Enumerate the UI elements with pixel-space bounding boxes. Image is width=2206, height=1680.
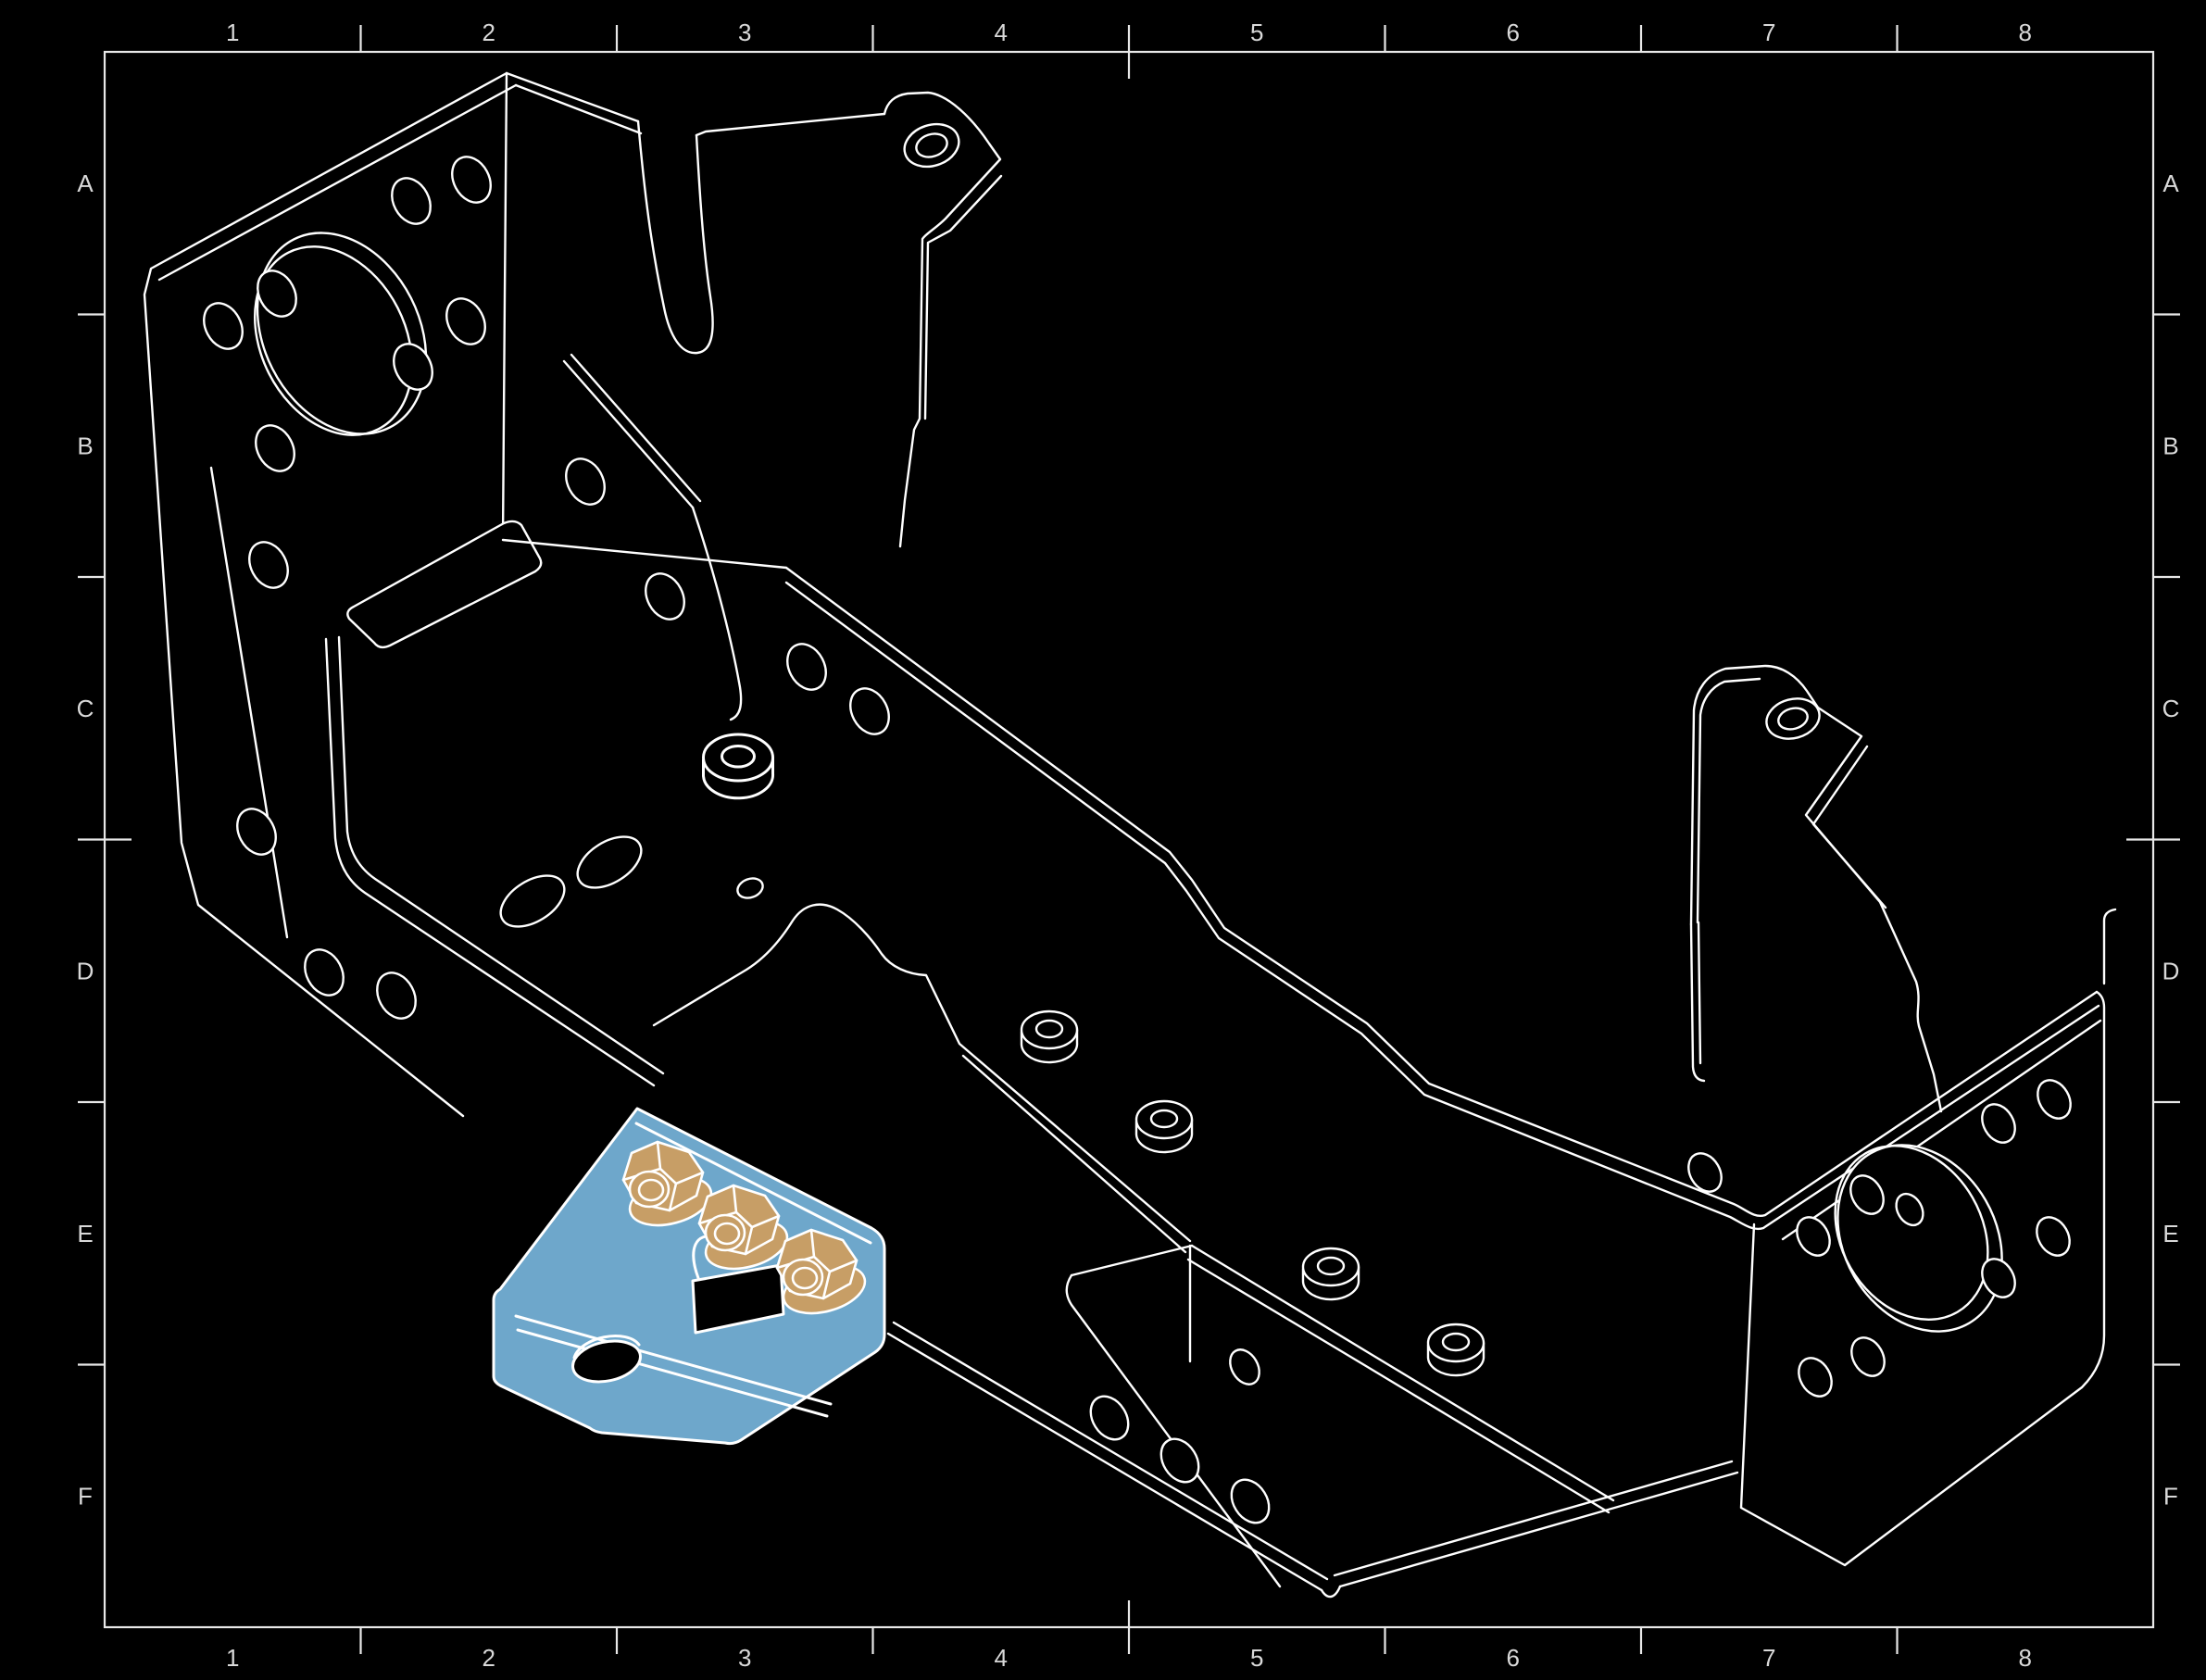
row-label-left-E: E: [77, 1220, 93, 1247]
cad-viewport[interactable]: 1122334455667788AABBCCDDEEFF: [0, 0, 2206, 1680]
column-label-top-6: 6: [1507, 19, 1520, 46]
right-end-plate: [1741, 909, 2115, 1565]
bottom-skirt: [888, 1147, 1737, 1597]
column-label-bottom-8: 8: [2019, 1644, 2032, 1672]
column-label-top-4: 4: [995, 19, 1008, 46]
column-label-bottom-6: 6: [1507, 1644, 1520, 1672]
column-label-bottom-7: 7: [1762, 1644, 1775, 1672]
row-label-left-A: A: [77, 169, 94, 197]
column-label-top-7: 7: [1762, 19, 1775, 46]
row-label-right-A: A: [2162, 169, 2179, 197]
column-label-top-5: 5: [1250, 19, 1263, 46]
row-label-left-D: D: [77, 957, 94, 984]
row-label-right-B: B: [2162, 432, 2178, 459]
row-label-right-E: E: [2162, 1220, 2178, 1247]
row-label-left-B: B: [77, 432, 93, 459]
row-label-right-C: C: [2162, 695, 2180, 722]
row-label-left-C: C: [77, 695, 94, 722]
row-label-right-F: F: [2163, 1482, 2178, 1510]
column-label-top-2: 2: [483, 19, 495, 46]
column-label-bottom-4: 4: [995, 1644, 1008, 1672]
cad-drawing-canvas[interactable]: 1122334455667788AABBCCDDEEFF: [0, 0, 2206, 1680]
column-label-top-1: 1: [226, 19, 239, 46]
row-label-left-F: F: [78, 1482, 93, 1510]
column-label-top-8: 8: [2019, 19, 2032, 46]
column-label-top-3: 3: [738, 19, 751, 46]
left-plate-large-hole: [224, 204, 459, 462]
border-frame: [105, 52, 2153, 1627]
column-label-bottom-3: 3: [738, 1644, 751, 1672]
column-label-bottom-1: 1: [226, 1644, 239, 1672]
column-label-bottom-5: 5: [1250, 1644, 1263, 1672]
row-label-right-D: D: [2162, 957, 2180, 984]
column-label-bottom-2: 2: [483, 1644, 495, 1672]
chassis-wireframe: [144, 73, 2115, 1597]
right-tab: [1691, 666, 1941, 1111]
tab-hole: [899, 118, 965, 173]
